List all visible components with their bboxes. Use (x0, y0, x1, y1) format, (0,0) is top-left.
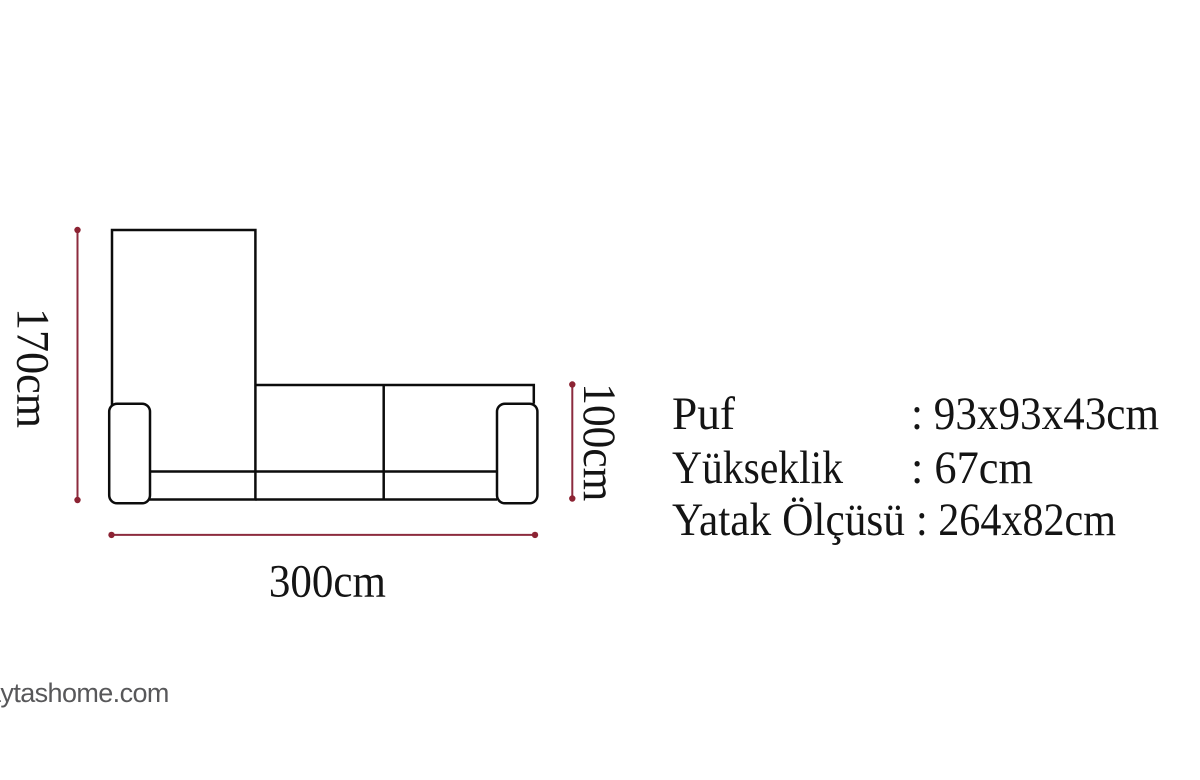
svg-text:aytashome.com: aytashome.com (0, 678, 169, 708)
svg-text:: 264x82cm: : 264x82cm (916, 494, 1116, 546)
svg-text:: 93x93x43cm: : 93x93x43cm (911, 388, 1159, 440)
svg-text:Yükseklik: Yükseklik (672, 442, 843, 494)
svg-text:Yatak Ölçüsü: Yatak Ölçüsü (672, 494, 905, 546)
svg-text:Puf: Puf (672, 388, 735, 440)
svg-text:170cm: 170cm (7, 308, 59, 428)
svg-text:: 67cm: : 67cm (911, 442, 1033, 494)
svg-text:300cm: 300cm (269, 556, 386, 608)
svg-text:100cm: 100cm (573, 383, 625, 501)
